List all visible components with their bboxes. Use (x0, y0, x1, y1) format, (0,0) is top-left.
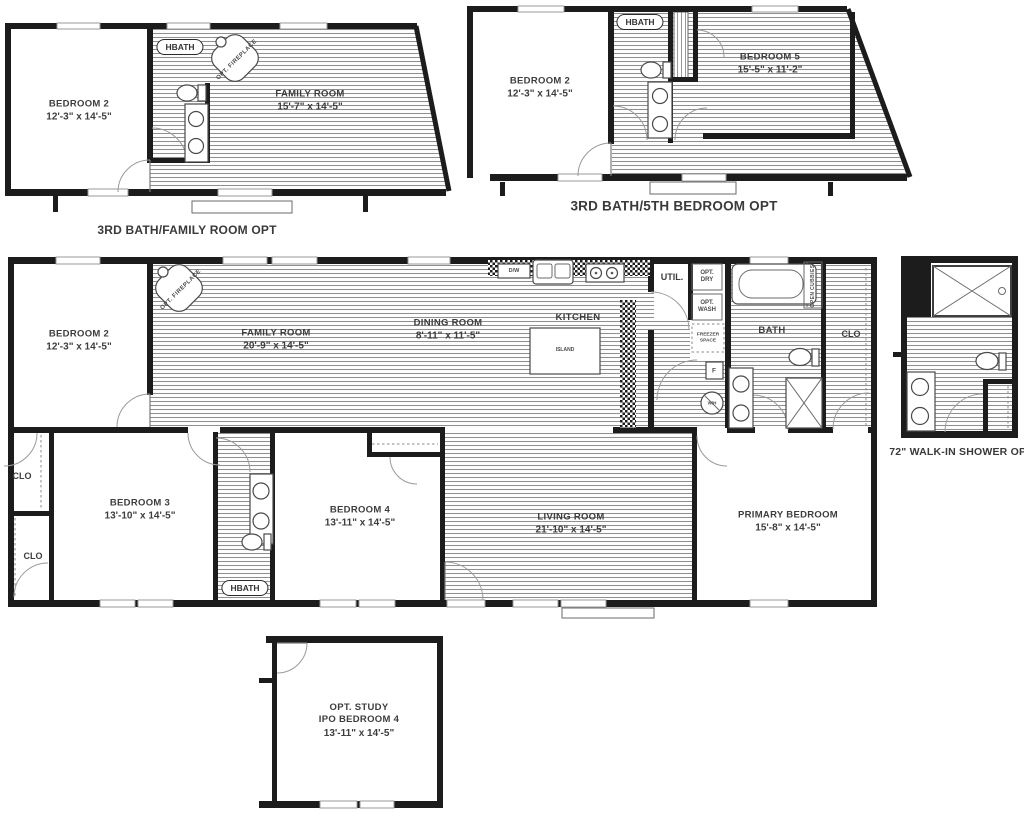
floorplan-page: BEDROOM 2 12'-3" x 14'-5" FAMILY ROOM 15… (0, 0, 1024, 837)
plan-b-drawing (467, 6, 910, 196)
main-plan-drawing (4, 257, 877, 618)
floorplans-svg (0, 0, 1024, 837)
study-opt-drawing (259, 636, 443, 808)
plan-a-drawing (5, 23, 449, 213)
shower-opt-drawing (893, 256, 1018, 438)
